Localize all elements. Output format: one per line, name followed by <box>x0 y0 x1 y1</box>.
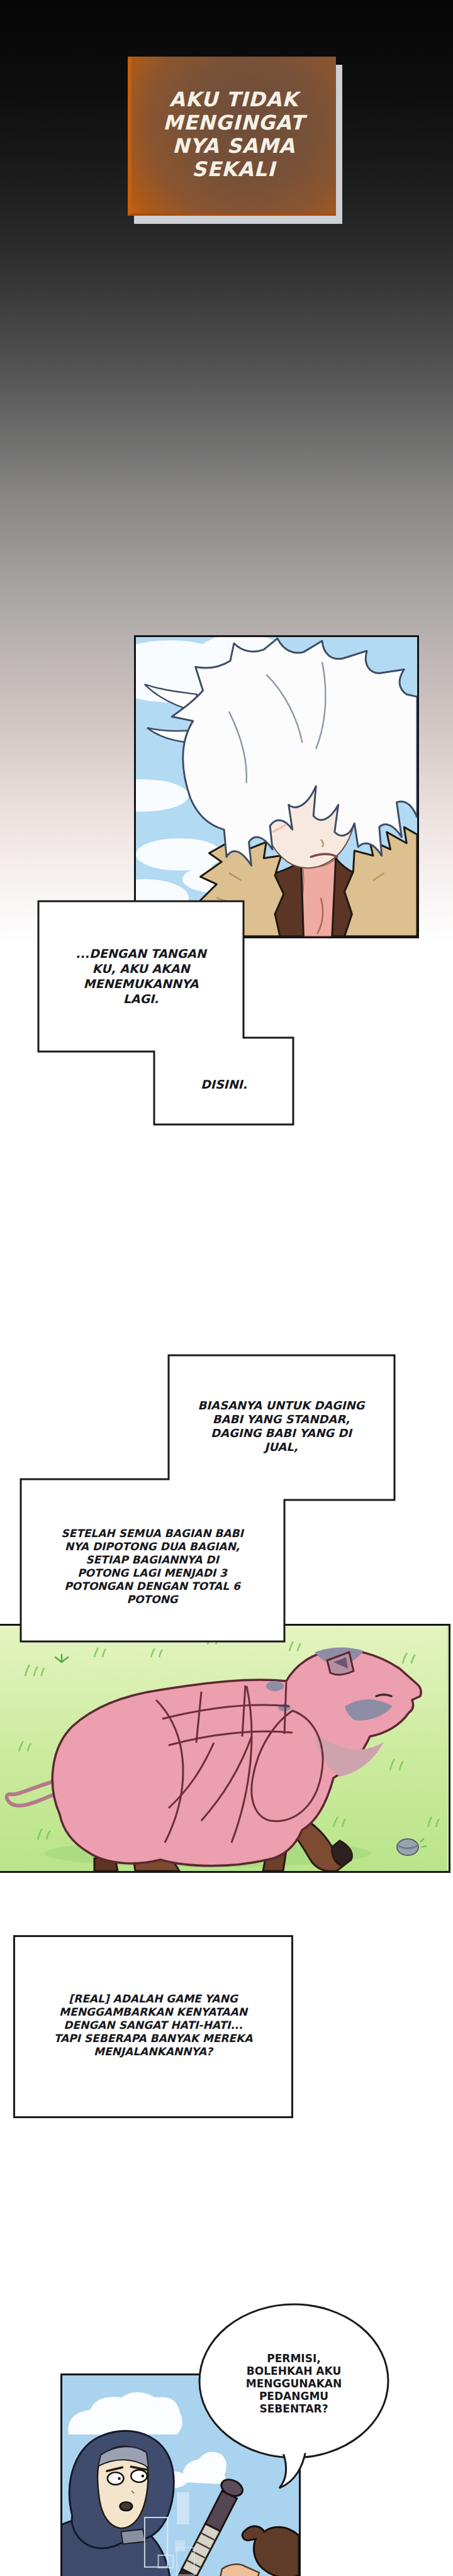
balloon-tail-joint <box>272 2435 313 2455</box>
bubble1b-text: DISINI. <box>155 1077 293 1092</box>
character-illustration <box>136 637 417 936</box>
caption-text: AKU TIDAK MENGINGAT NYA SAMA SEKALI <box>131 57 336 181</box>
ui-light-bar <box>177 2492 189 2524</box>
bubble2a-text: BIASANYA UNTUK DAGING BABI YANG STANDAR,… <box>174 1399 388 1454</box>
speech-bubble-pair-1 <box>36 899 296 1127</box>
panel-pig <box>0 1624 450 1873</box>
bubble1a-text: ...DENGAN TANGAN KU, AKU AKAN MENEMUKANN… <box>40 946 242 1006</box>
open-mouth <box>120 2502 133 2511</box>
caption-box: AKU TIDAK MENGINGAT NYA SAMA SEKALI <box>128 57 336 216</box>
bubble3-text: [REAL] ADALAH GAME YANG MENGGAMBARKAN KE… <box>20 1992 287 2058</box>
panel-character <box>134 635 419 938</box>
comic-page: AKU TIDAK MENGINGAT NYA SAMA SEKALI <box>0 0 453 2576</box>
pig-illustration <box>0 1626 447 1871</box>
collar <box>121 2529 145 2545</box>
balloon-tail <box>279 2450 306 2488</box>
balloon-text: PERMISI, BOLEHKAH AKU MENGGUNAKAN PEDANG… <box>221 2352 366 2415</box>
bubble2b-text: SETELAH SEMUA BAGIAN BABI NYA DIPOTONG D… <box>26 1527 278 1606</box>
